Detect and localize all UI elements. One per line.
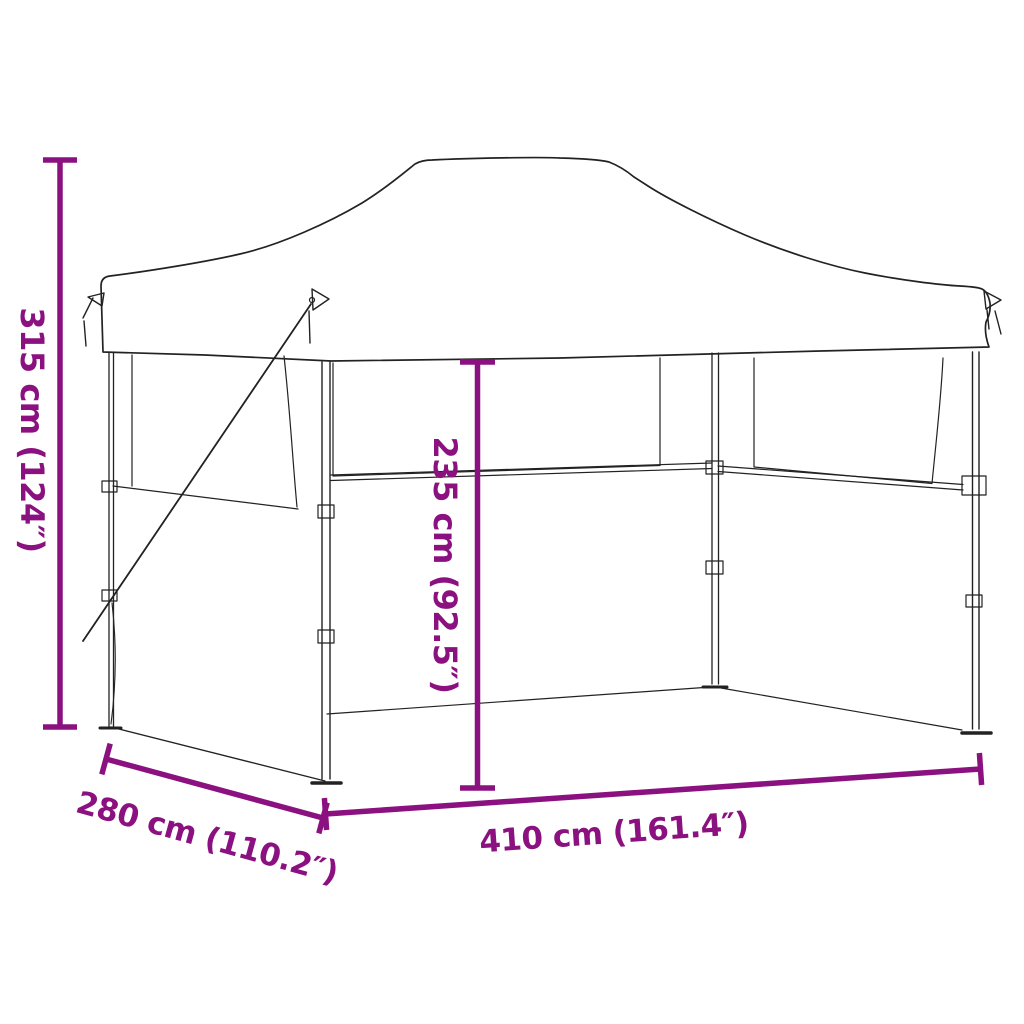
canopy [101, 158, 990, 361]
pole-front-right [962, 352, 991, 733]
sidewall-back-window [333, 358, 660, 476]
pole-front-left [312, 362, 341, 783]
dimension-label-inner-height: 235 cm (92.5″) [426, 437, 464, 694]
crossbar-right [718, 466, 963, 490]
dimension-label-total-height: 315 cm (124″) [13, 307, 51, 552]
pole-back-right [703, 353, 727, 687]
sidewall-right-window [754, 358, 943, 484]
wall-ground-edges [111, 687, 962, 781]
pole-back-left [100, 353, 121, 728]
dimension-line-inner-height [460, 362, 495, 788]
corner-flag-right [984, 291, 1001, 334]
sidewall-left-window [113, 355, 298, 509]
corner-flag-middle [309, 289, 329, 343]
tent-illustration [0, 0, 1024, 1024]
tent-dimension-diagram: 315 cm (124″) 235 cm (92.5″) 410 cm (161… [0, 0, 1024, 1024]
